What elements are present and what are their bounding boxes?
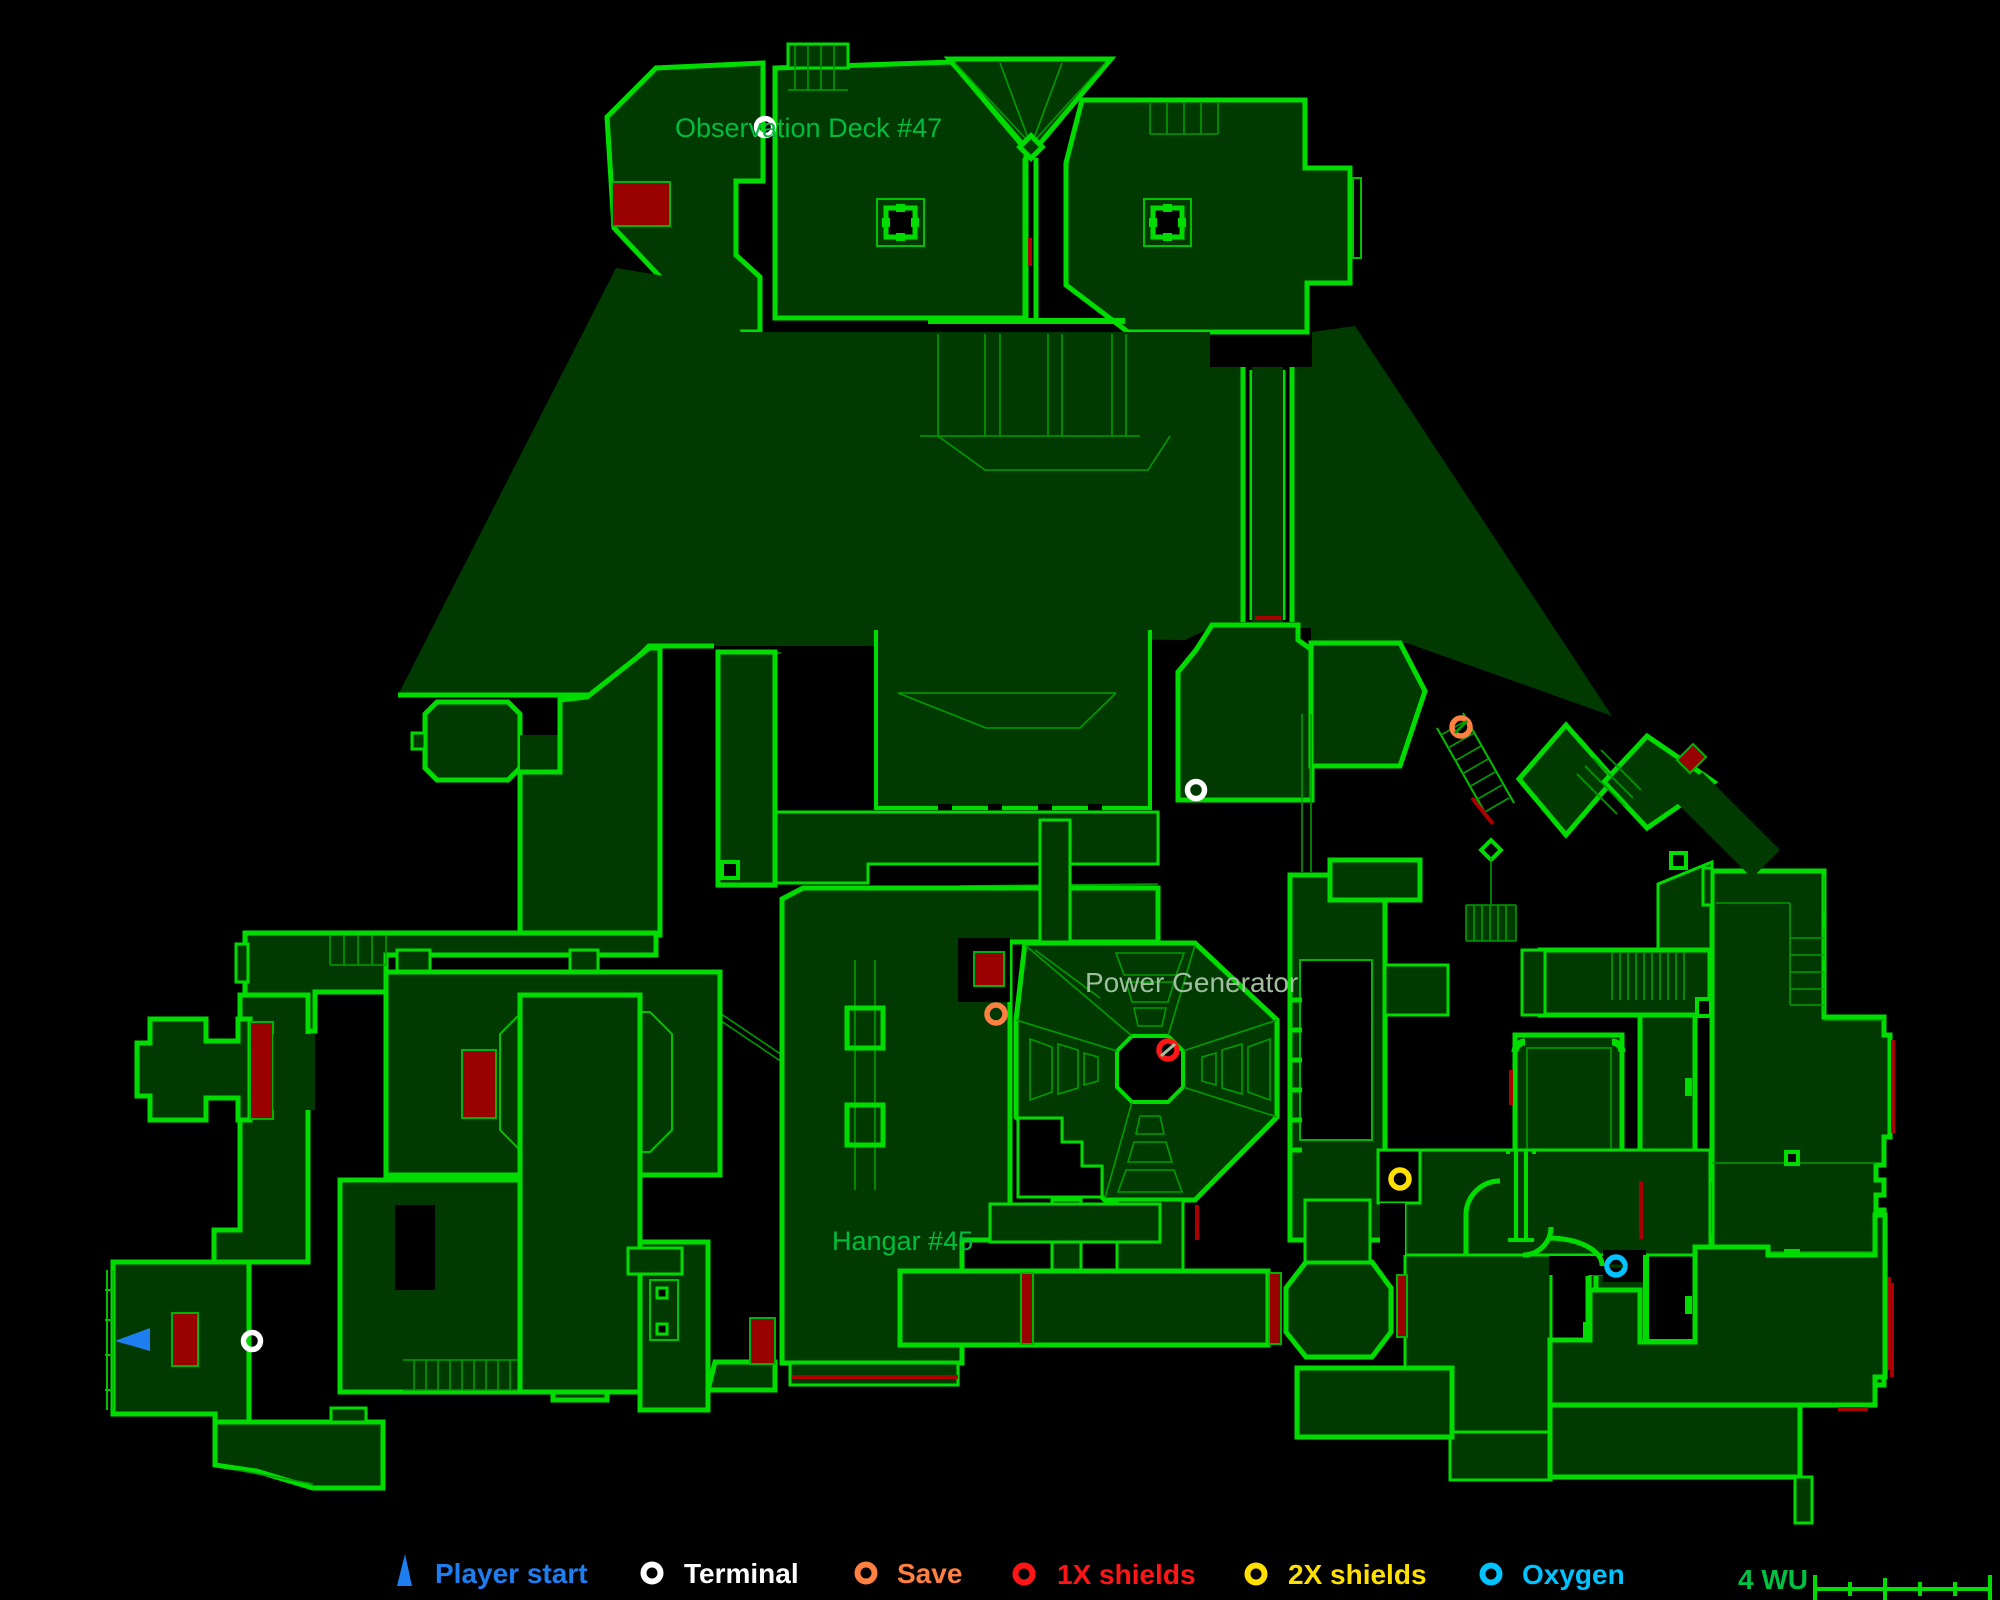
svg-text:Terminal: Terminal — [684, 1558, 799, 1589]
svg-text:Oxygen: Oxygen — [1522, 1559, 1625, 1590]
svg-text:1X shields: 1X shields — [1057, 1559, 1196, 1590]
svg-text:Save: Save — [897, 1558, 962, 1589]
svg-text:Observation Deck #47: Observation Deck #47 — [675, 113, 942, 143]
svg-text:Hangar #45: Hangar #45 — [832, 1226, 973, 1256]
svg-text:4 WU: 4 WU — [1738, 1564, 1808, 1595]
svg-text:Power Generator: Power Generator — [1085, 967, 1298, 998]
svg-text:Player start: Player start — [435, 1558, 588, 1589]
svg-text:2X shields: 2X shields — [1288, 1559, 1427, 1590]
